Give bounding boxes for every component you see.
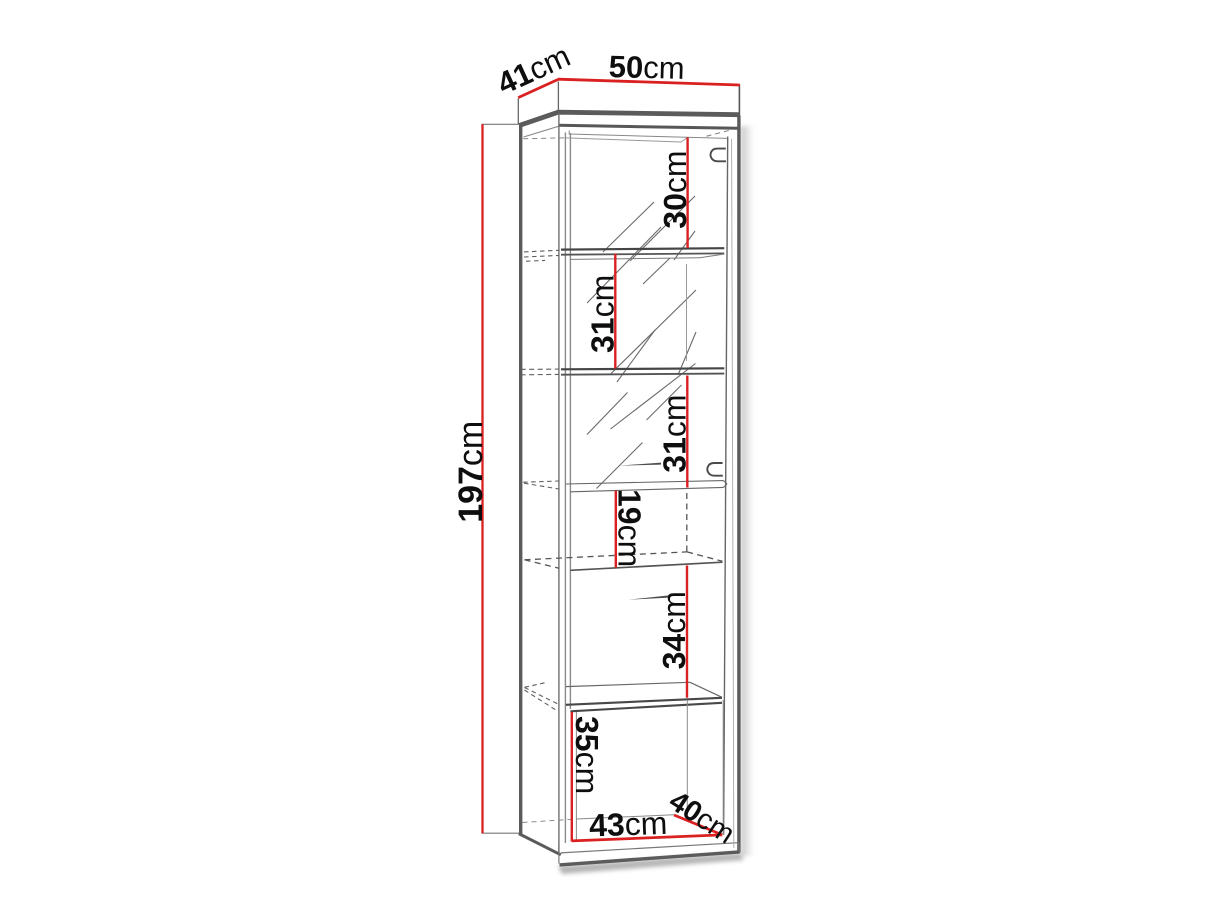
svg-text:197cm: 197cm <box>452 421 490 523</box>
svg-text:40cm: 40cm <box>663 785 740 850</box>
svg-text:31cm: 31cm <box>656 394 692 472</box>
svg-text:30cm: 30cm <box>657 150 693 228</box>
svg-text:31cm: 31cm <box>585 275 621 353</box>
svg-text:34cm: 34cm <box>656 591 692 669</box>
svg-text:19cm: 19cm <box>611 489 647 567</box>
svg-text:35cm: 35cm <box>569 716 605 794</box>
svg-text:50cm: 50cm <box>608 49 685 86</box>
svg-text:43cm: 43cm <box>588 805 667 844</box>
